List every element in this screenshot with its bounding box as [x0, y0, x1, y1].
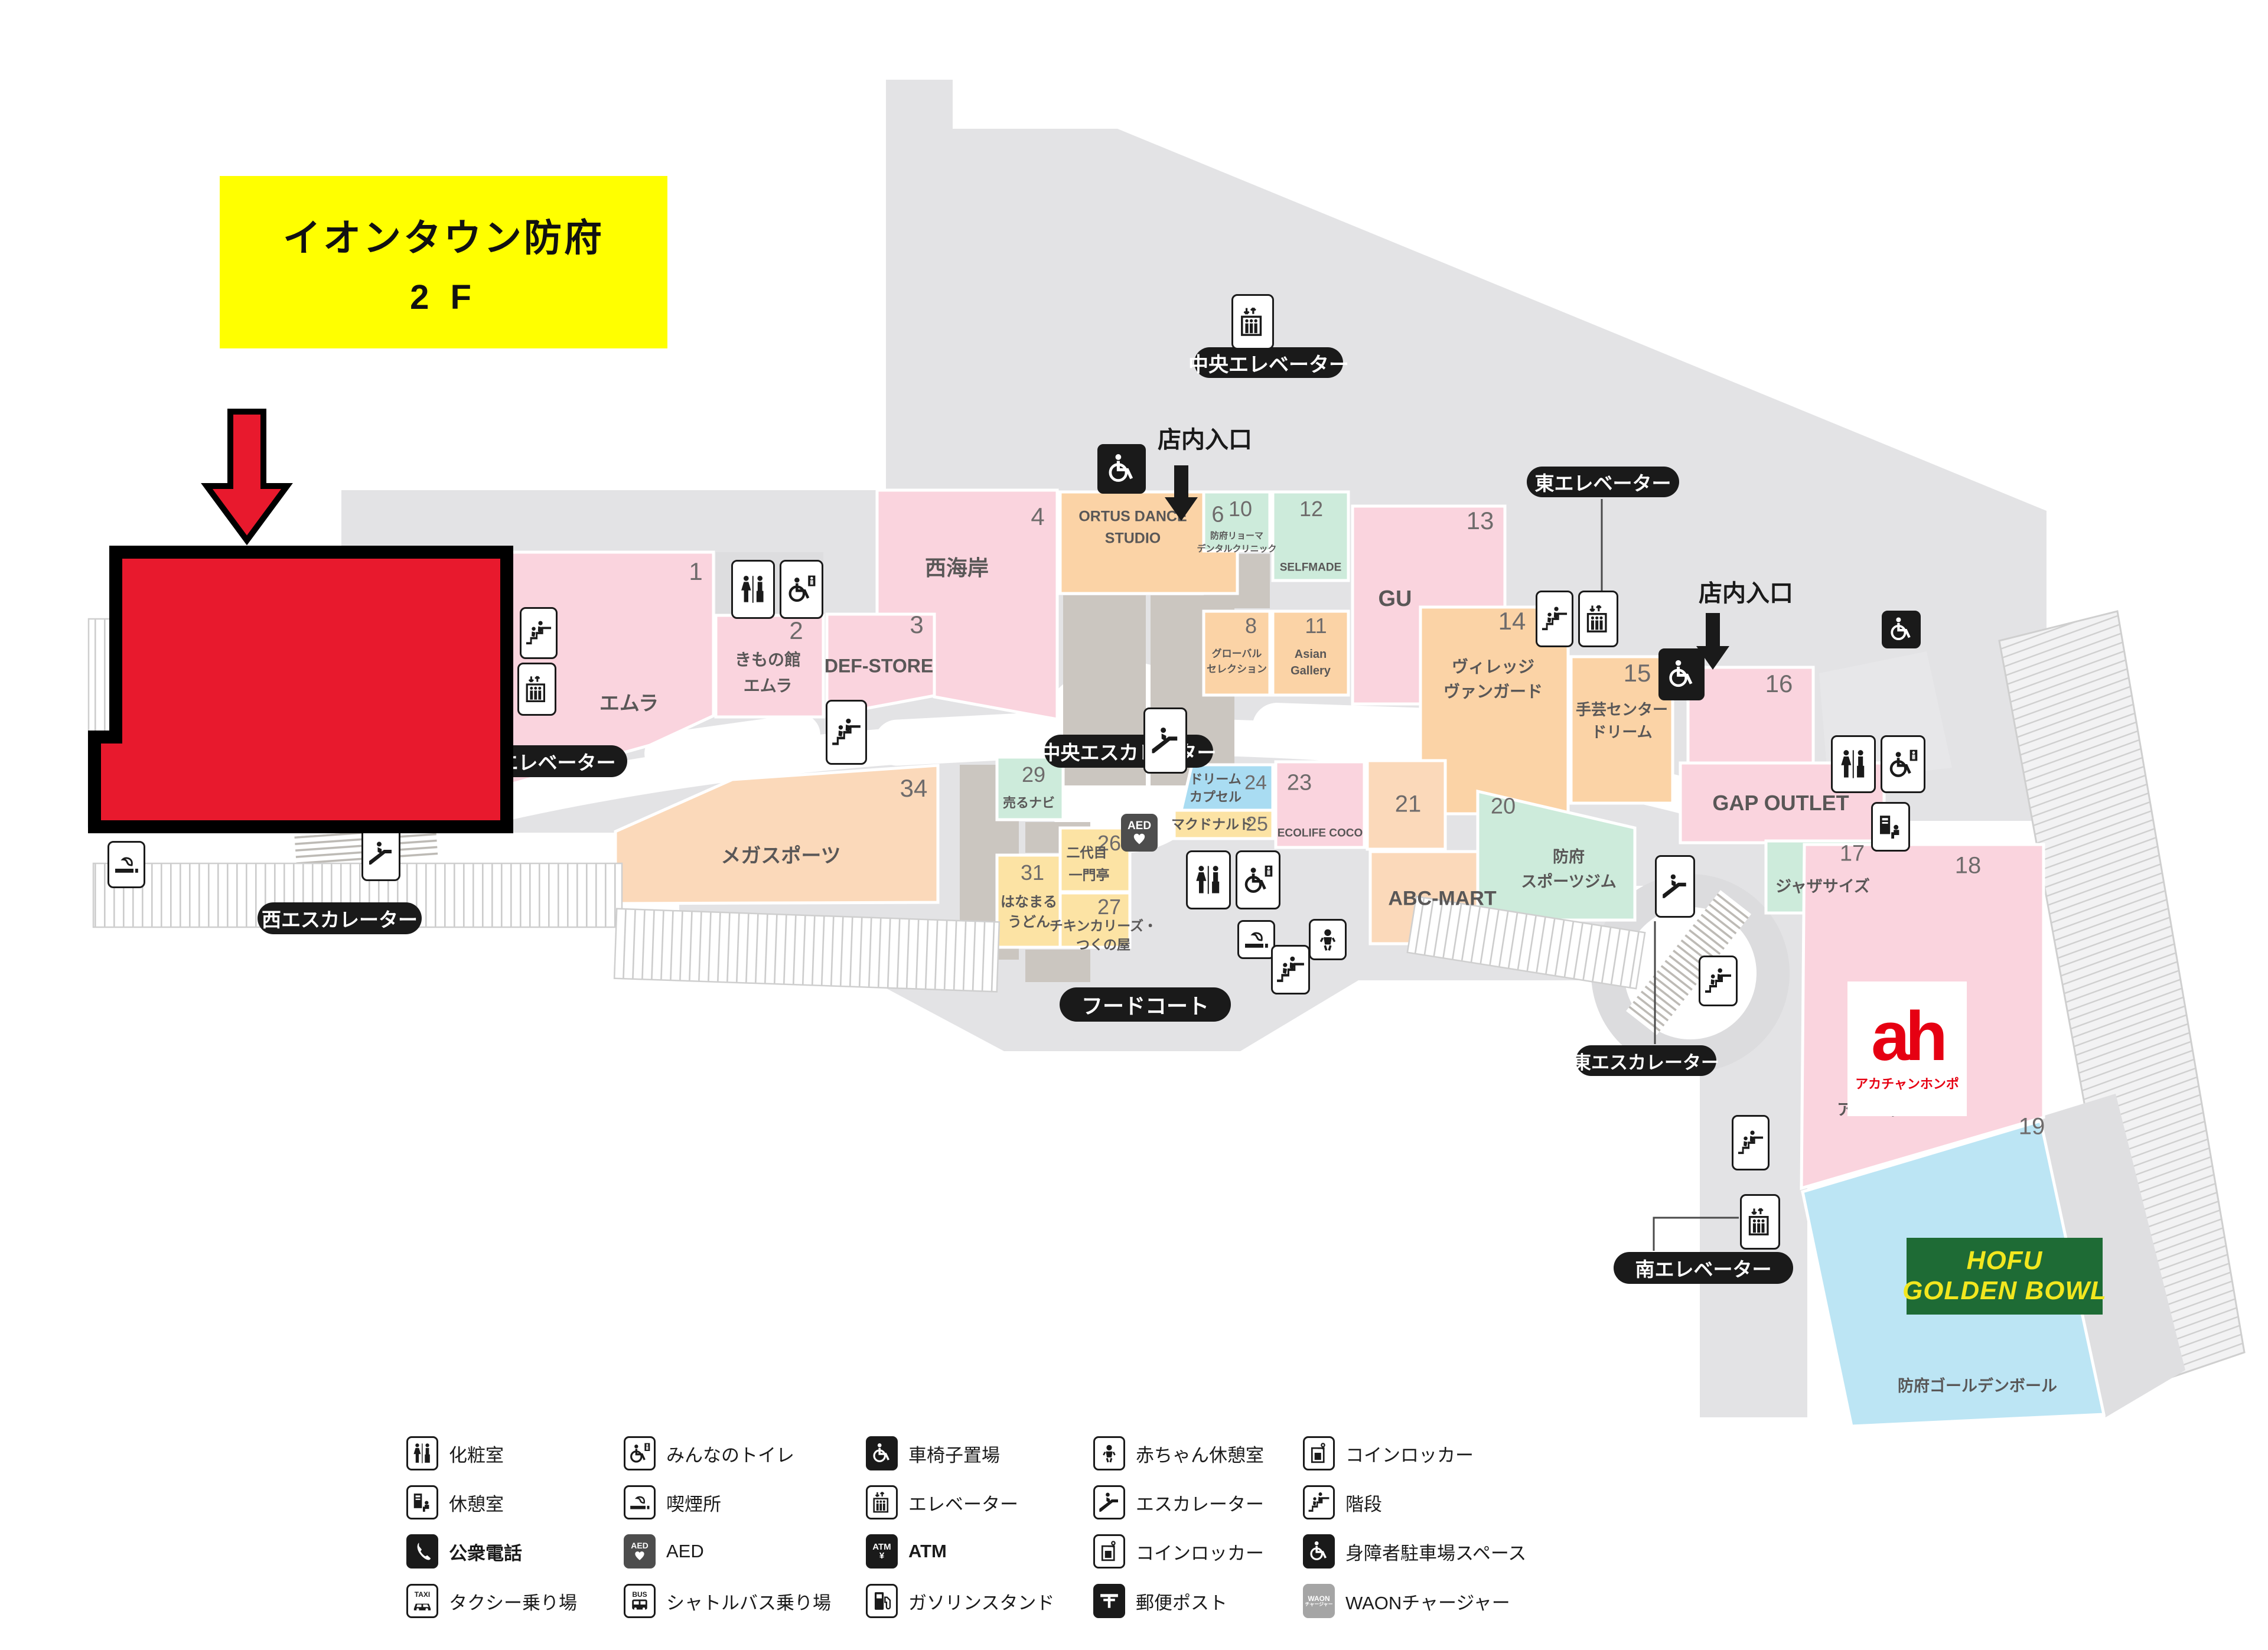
- legend-label: WAONチャージャー: [1345, 1588, 1510, 1615]
- legend-item: 郵便ポスト: [1093, 1584, 1227, 1618]
- legend-item: エレベーター: [866, 1485, 1018, 1519]
- rest-area-icon: [406, 1485, 438, 1519]
- legend-label: 郵便ポスト: [1136, 1588, 1227, 1615]
- legend-label: 喫煙所: [666, 1489, 721, 1516]
- legend-item: TAXIタクシー乗り場: [406, 1584, 577, 1618]
- floor-map-canvas: イオンタウン防府 2 F エムラ 1 2 きもの館 エムラ 3 DEF-STOR…: [0, 0, 2268, 1650]
- entrance-arrow-center: [1165, 465, 1198, 521]
- bus-icon-text: BUS: [632, 1591, 647, 1598]
- legend-item: 階段: [1303, 1485, 1382, 1519]
- legend-label: 赤ちゃん休憩室: [1136, 1440, 1264, 1467]
- legend-label: ガソリンスタンド: [908, 1588, 1054, 1615]
- legend-label: エレベーター: [908, 1489, 1018, 1516]
- legend-label: みんなのトイレ: [666, 1440, 794, 1467]
- legend-label: シャトルバス乗り場: [666, 1588, 831, 1615]
- taxi-icon-text: TAXI: [415, 1591, 430, 1598]
- elevator-icon: [866, 1485, 898, 1519]
- legend-item: AEDAED: [624, 1534, 704, 1569]
- legend-item: 身障者駐車場スペース: [1303, 1534, 1526, 1569]
- accessible-parking-icon: [1303, 1534, 1335, 1569]
- legend-label: タクシー乗り場: [449, 1588, 577, 1615]
- gas-station-icon: [866, 1584, 898, 1618]
- legend-item: ガソリンスタンド: [866, 1584, 1054, 1618]
- taxi-icon: TAXI: [406, 1584, 438, 1618]
- coin-locker-icon: [1093, 1534, 1125, 1569]
- legend-item: 喫煙所: [624, 1485, 721, 1519]
- legend-label: 化粧室: [449, 1440, 504, 1467]
- bus-icon: BUS: [624, 1584, 656, 1618]
- highlight-overlay: [0, 0, 2268, 1650]
- legend-label: コインロッカー: [1136, 1538, 1264, 1565]
- legend-label: コインロッカー: [1345, 1440, 1474, 1467]
- legend-item: 公衆電話: [406, 1534, 522, 1569]
- legend-item: コインロッカー: [1303, 1436, 1474, 1470]
- accessible-toilet-icon: [624, 1436, 656, 1470]
- legend-item: エスカレーター: [1093, 1485, 1264, 1519]
- legend-label: 身障者駐車場スペース: [1345, 1538, 1526, 1565]
- legend-item: 休憩室: [406, 1485, 504, 1519]
- restroom-icon: [406, 1436, 438, 1470]
- waon-charger-icon: WAONチャージャー: [1303, 1584, 1335, 1618]
- public-phone-icon: [406, 1534, 438, 1569]
- atm-icon-yen: ¥: [879, 1551, 884, 1560]
- legend-label: 階段: [1345, 1489, 1382, 1516]
- atm-icon-text: ATM: [872, 1543, 891, 1551]
- legend-item: 化粧室: [406, 1436, 504, 1470]
- legend-item: 車椅子置場: [866, 1436, 1000, 1470]
- legend-label: 車椅子置場: [908, 1440, 1000, 1467]
- atm-icon: ATM¥: [866, 1534, 898, 1569]
- wheelchair-icon: [866, 1436, 898, 1470]
- aed-icon: AED: [624, 1534, 656, 1569]
- smoking-icon: [624, 1485, 656, 1519]
- baby-room-icon: [1093, 1436, 1125, 1470]
- waon-icon-text2: チャージャー: [1305, 1602, 1332, 1607]
- legend-label: ATM: [908, 1541, 947, 1562]
- coin-locker-icon: [1303, 1436, 1335, 1470]
- legend-label: AED: [666, 1541, 704, 1562]
- locator-arrow: [207, 412, 287, 540]
- legend-label: エスカレーター: [1136, 1489, 1264, 1516]
- legend-item: WAONチャージャーWAONチャージャー: [1303, 1584, 1510, 1618]
- legend-item: ATM¥ATM: [866, 1534, 947, 1569]
- legend-item: BUSシャトルバス乗り場: [624, 1584, 831, 1618]
- stairs-icon: [1303, 1485, 1335, 1519]
- highlighted-store: [94, 552, 507, 827]
- legend-item: 赤ちゃん休憩室: [1093, 1436, 1264, 1470]
- entrance-arrow-east: [1696, 613, 1729, 670]
- legend-item: コインロッカー: [1093, 1534, 1264, 1569]
- legend-label: 休憩室: [449, 1489, 504, 1516]
- aed-icon-text: AED: [631, 1541, 649, 1550]
- escalator-icon: [1093, 1485, 1125, 1519]
- legend-label: 公衆電話: [449, 1538, 522, 1565]
- post-box-icon: [1093, 1584, 1125, 1618]
- legend-item: みんなのトイレ: [624, 1436, 794, 1470]
